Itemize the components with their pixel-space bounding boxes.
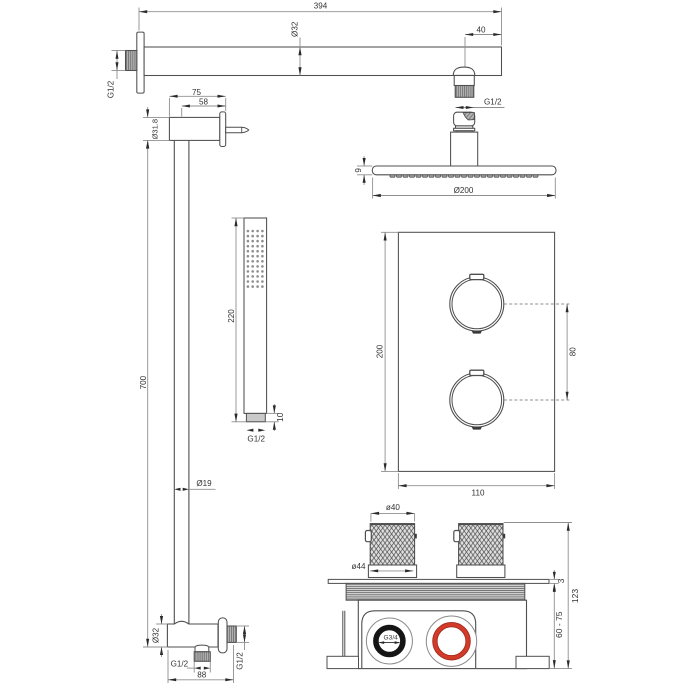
- svg-text:200: 200: [375, 344, 384, 358]
- svg-text:Ø32: Ø32: [290, 21, 299, 37]
- svg-text:G1/2: G1/2: [484, 98, 502, 107]
- svg-text:110: 110: [472, 489, 485, 498]
- svg-text:80: 80: [568, 347, 577, 357]
- svg-text:60 - 75: 60 - 75: [554, 611, 564, 638]
- svg-text:10: 10: [276, 412, 285, 422]
- svg-text:40: 40: [476, 26, 486, 35]
- svg-text:58: 58: [199, 98, 209, 107]
- svg-text:ø44: ø44: [352, 562, 366, 571]
- svg-text:G1/2: G1/2: [247, 434, 265, 443]
- svg-text:3: 3: [556, 578, 566, 583]
- svg-text:88: 88: [197, 671, 207, 680]
- svg-text:Ø32: Ø32: [152, 627, 161, 643]
- svg-text:700: 700: [139, 375, 148, 389]
- svg-text:G1/2: G1/2: [236, 652, 245, 670]
- svg-text:Ø31.8: Ø31.8: [151, 119, 160, 139]
- svg-text:Ø19: Ø19: [196, 479, 212, 488]
- svg-text:75: 75: [192, 88, 202, 97]
- svg-text:9: 9: [354, 168, 363, 173]
- svg-text:Ø200: Ø200: [454, 186, 474, 195]
- svg-text:123: 123: [570, 589, 580, 603]
- svg-text:220: 220: [227, 309, 236, 323]
- svg-text:G3/4: G3/4: [384, 634, 399, 641]
- svg-text:G1/2: G1/2: [106, 80, 115, 98]
- svg-text:G1/2: G1/2: [171, 660, 189, 669]
- svg-text:ø40: ø40: [386, 503, 400, 512]
- svg-text:394: 394: [314, 2, 328, 11]
